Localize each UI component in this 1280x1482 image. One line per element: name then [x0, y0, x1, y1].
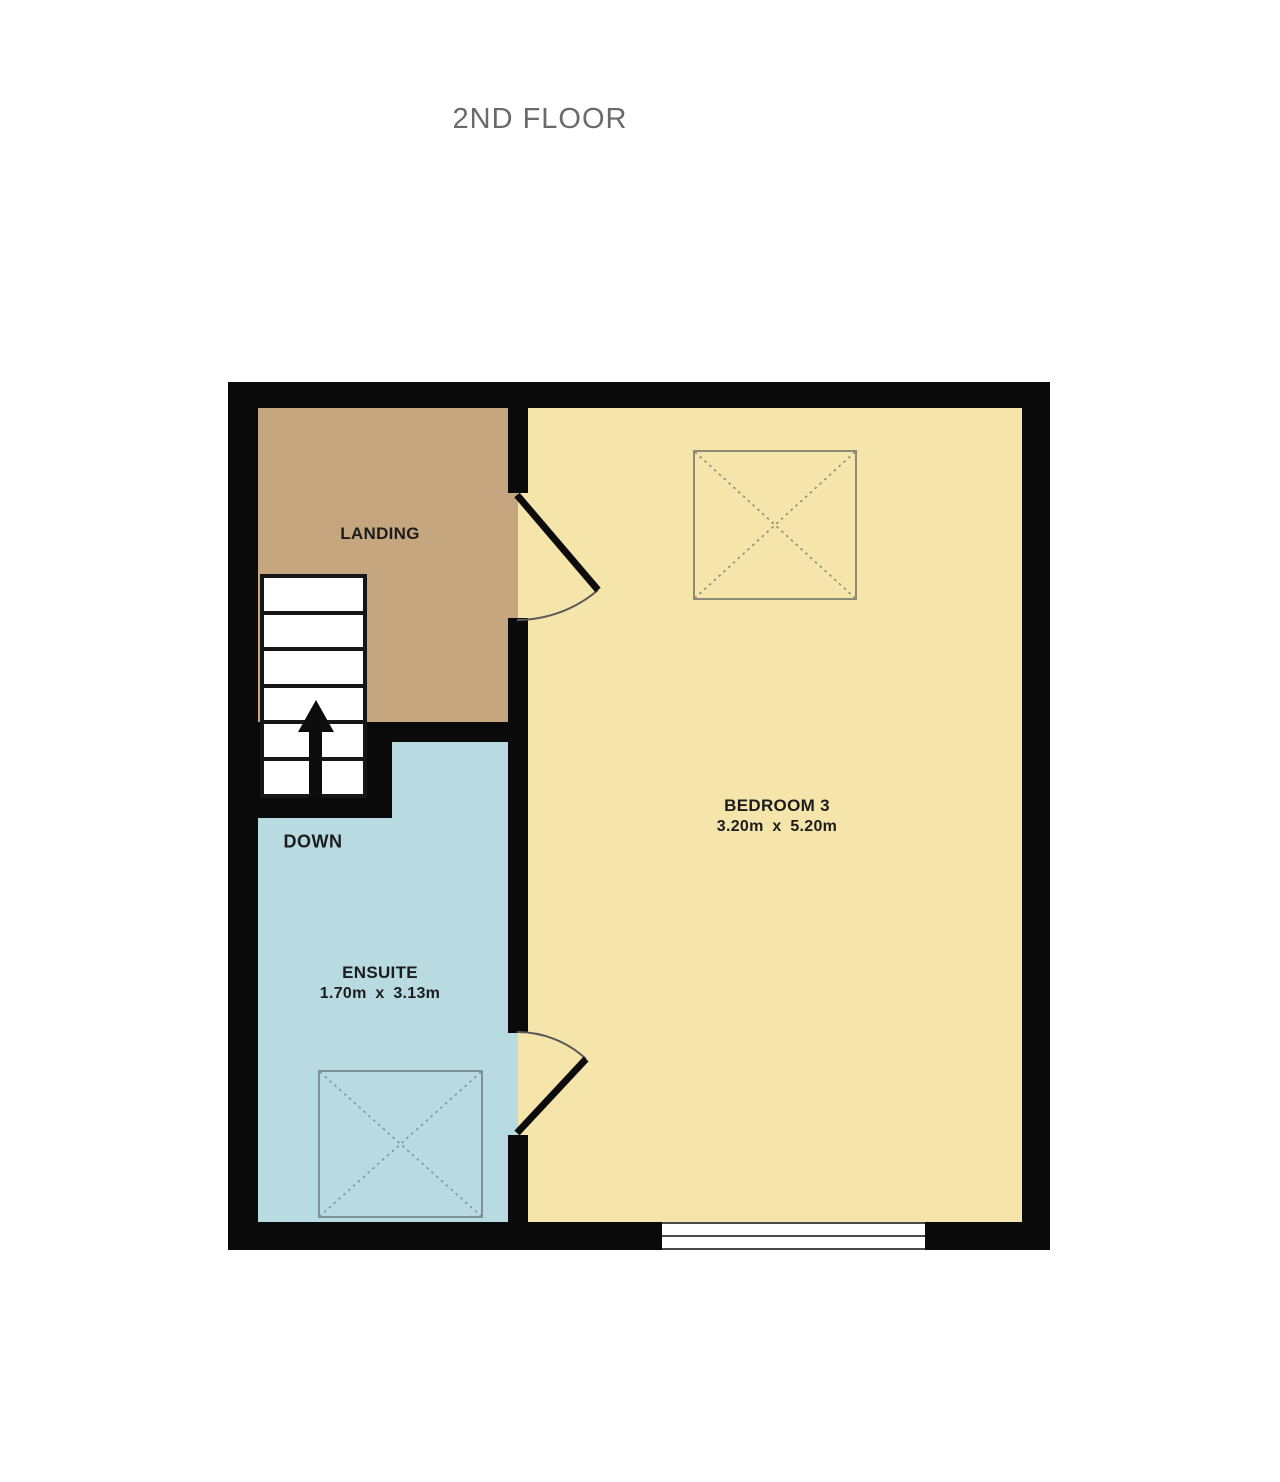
door-ensuite-bedroom [517, 1032, 586, 1133]
ensuite-dimensions: 1.70m x 3.13m [320, 983, 440, 1004]
landing-label: LANDING [340, 524, 420, 544]
bedroom-label-block: BEDROOM 3 3.20m x 5.20m [717, 795, 837, 837]
page-title: 2ND FLOOR [340, 103, 740, 136]
bedroom-dimensions: 3.20m x 5.20m [717, 816, 837, 837]
door-leaf [517, 495, 598, 590]
door-landing-bedroom [517, 495, 598, 620]
bedroom-label: BEDROOM 3 [717, 795, 837, 816]
door-swing-arc [517, 1032, 586, 1059]
doors-overlay [228, 382, 1050, 1250]
door-leaf [517, 1059, 586, 1133]
ensuite-label-block: ENSUITE 1.70m x 3.13m [320, 962, 440, 1004]
door-swing-arc [517, 590, 598, 620]
floor-plan: LANDING BEDROOM 3 3.20m x 5.20m ENSUITE … [228, 382, 1050, 1250]
ensuite-label: ENSUITE [320, 962, 440, 983]
stairs-down-label: DOWN [284, 832, 343, 853]
